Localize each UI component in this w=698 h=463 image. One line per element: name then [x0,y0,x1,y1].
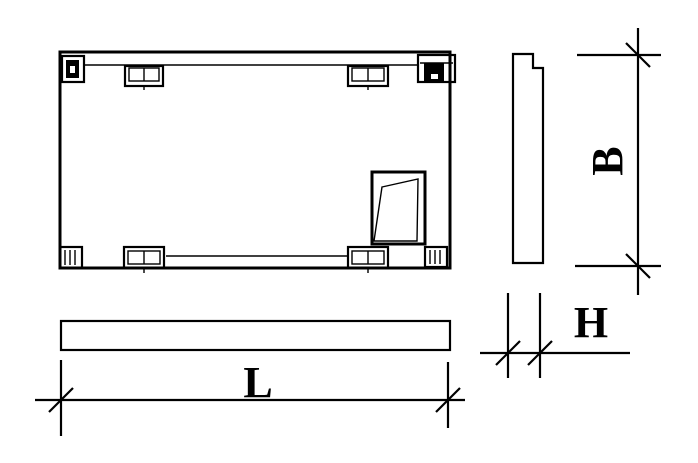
dimension-L: L [35,358,465,436]
dimension-B: B [575,28,661,295]
corner-anchor-top-left [62,56,84,82]
plan-outline [60,52,450,268]
embed-plate-top-right [348,66,388,90]
dim-label-length: L [243,358,272,407]
panel-drawing-svg: L B H [0,0,698,463]
front-elevation-outline [61,321,450,350]
dimension-H: H [480,293,630,378]
front-elevation-view [61,321,450,350]
technical-drawing-canvas: L B H [0,0,698,463]
plan-view [60,52,455,273]
dim-label-width: B [583,146,632,175]
corner-anchor-bottom-left [60,247,82,268]
dim-label-thickness: H [574,298,608,347]
side-view-outline [513,54,543,263]
side-view [513,54,543,263]
embed-plate-top-left [125,66,163,90]
corner-anchor-bottom-right [425,247,447,267]
opening-detail [372,172,425,244]
